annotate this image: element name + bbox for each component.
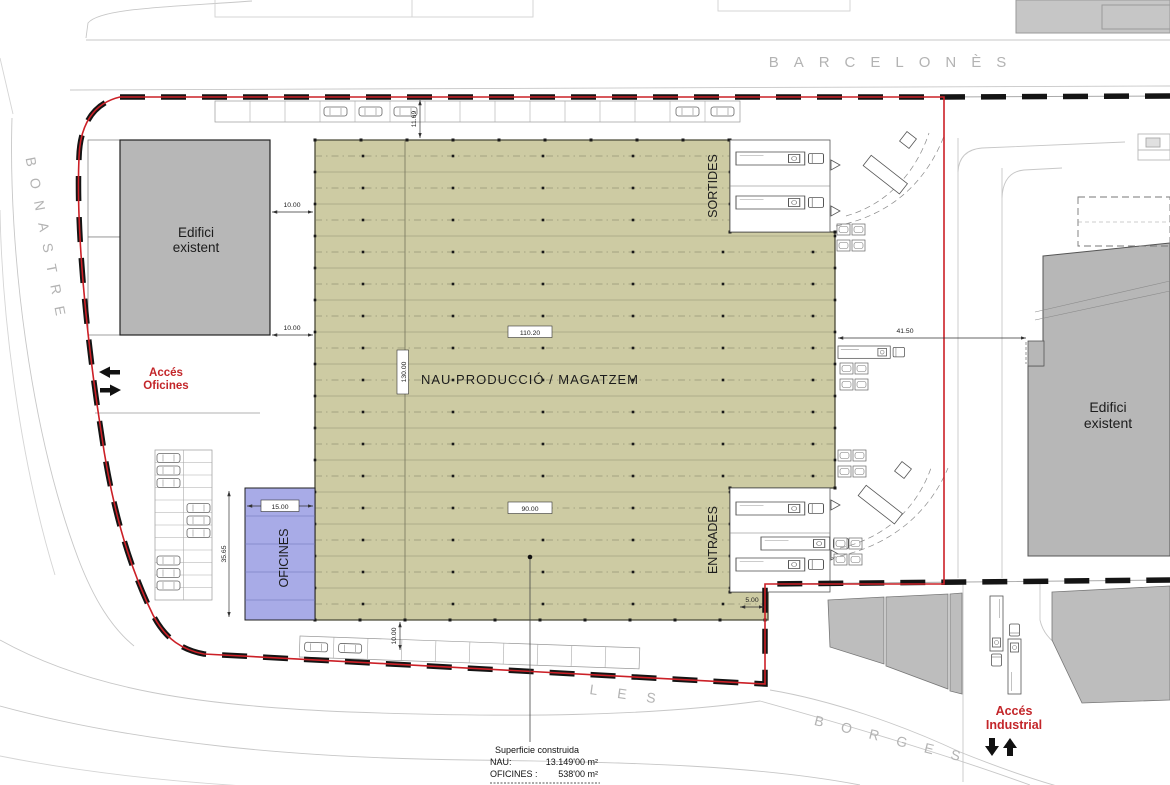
arrow-right-icon <box>100 385 121 397</box>
dim-nau-height: 130.00 <box>397 350 409 394</box>
truck-icon <box>736 196 824 209</box>
parking-top <box>215 101 740 122</box>
car-icon <box>187 504 210 513</box>
dim-entrades-width: 90.00 <box>508 502 552 514</box>
dim-text: 10.00 <box>283 202 300 209</box>
car-pair-icon <box>837 240 865 251</box>
dim-nau-width: 110.20 <box>508 326 552 338</box>
acces-industrial-label-2: Industrial <box>986 718 1042 732</box>
edifici-right-label-2: existent <box>1084 415 1132 431</box>
car-icon <box>359 107 382 116</box>
dim-text: 130.00 <box>401 361 408 382</box>
dim-text: 90.00 <box>521 506 538 513</box>
street-left-label: BONASTRE <box>23 156 72 329</box>
acces-oficines-label-2: Oficines <box>143 380 188 392</box>
edifici-right-label-1: Edifici <box>1089 399 1126 415</box>
parking-left <box>155 450 212 600</box>
car-pair-icon <box>840 379 868 390</box>
car-icon <box>324 107 347 116</box>
arrow-down-icon <box>985 738 999 756</box>
acces-industrial: Accés Industrial <box>985 704 1042 756</box>
car-icon <box>187 529 210 538</box>
car-icon <box>157 581 180 590</box>
dock-arrow-icon <box>831 500 840 510</box>
truck-icon <box>736 558 824 571</box>
dim-text: 35.65 <box>221 545 228 562</box>
car-icon <box>157 454 180 463</box>
truck-icon <box>1008 624 1021 694</box>
car-icon <box>157 569 180 578</box>
road-corner-topleft <box>86 1 252 38</box>
nau-label: NAU PRODUCCIÓ / MAGATZEM <box>421 372 639 387</box>
truck-icon <box>736 502 824 515</box>
street-bottom-label-1: LES <box>589 681 677 709</box>
car-icon <box>187 516 210 525</box>
dim-oficines-height: 35.65 <box>221 491 229 617</box>
dim-gap-left-bottom: 10.00 <box>272 325 313 335</box>
dim-gap-left-top: 10.00 <box>272 202 313 212</box>
acces-industrial-label-1: Accés <box>996 704 1033 718</box>
truck-icon <box>838 346 905 358</box>
block-south-3 <box>950 593 962 694</box>
site-plan-drawing: Edifici existent Edifici existent NAU PR… <box>0 0 1170 785</box>
summary-row-value: 538'00 m² <box>558 769 598 779</box>
arrow-up-icon <box>1003 738 1017 756</box>
summary-row-label: NAU: <box>490 757 512 767</box>
car-icon <box>676 107 699 116</box>
street-top-label: BARCELONÈS <box>769 54 1022 71</box>
edifici-existent-left: Edifici existent <box>88 140 270 335</box>
dock-arrow-icon <box>831 206 840 216</box>
dim-text: 110.20 <box>520 330 541 337</box>
dim-text: 15.00 <box>271 504 288 511</box>
dim-text: 41.50 <box>896 328 913 335</box>
block-south-east <box>1052 586 1170 703</box>
oficines-label: OFICINES <box>277 528 291 587</box>
edifici-left-label-2: existent <box>173 240 220 255</box>
sortides-label: SORTIDES <box>706 154 720 218</box>
dim-text: 5.00 <box>745 597 758 604</box>
car-icon <box>304 642 327 652</box>
car-pair-icon <box>834 554 862 565</box>
dim-text: 10.00 <box>283 325 300 332</box>
truck-icon <box>990 596 1003 666</box>
block-south-1 <box>828 597 884 664</box>
dim-text: 10.00 <box>391 627 398 644</box>
acces-oficines: Accés Oficines <box>99 367 189 397</box>
road-borges-curb-lower <box>0 706 860 785</box>
dock-arrow-icon <box>831 160 840 170</box>
leader-dot <box>528 555 533 560</box>
future-extension-dashed <box>1078 197 1170 246</box>
entrades-docks <box>730 488 849 592</box>
summary-row-label: OFICINES : <box>490 769 538 779</box>
truck-turning-paths <box>830 132 948 558</box>
car-pair-icon <box>837 224 865 235</box>
street-bottom-label-2: BORGES <box>813 712 980 768</box>
car-pair-icon <box>838 466 866 477</box>
dim-text: 11.69 <box>411 111 418 128</box>
car-pair-icon <box>838 450 866 461</box>
car-icon <box>157 466 180 475</box>
acces-oficines-label-1: Accés <box>149 367 183 379</box>
site-plan-page: Edifici existent Edifici existent NAU PR… <box>0 0 1170 785</box>
car-icon <box>338 643 361 653</box>
car-icon <box>157 556 180 565</box>
truck-icon <box>736 152 824 165</box>
arrow-left-icon <box>99 367 120 379</box>
car-icon <box>157 479 180 488</box>
car-pair-icon <box>840 363 868 374</box>
sortides-docks <box>730 140 840 232</box>
edifici-existent-right: Edifici existent <box>1028 197 1170 556</box>
car-icon <box>711 107 734 116</box>
entrades-label: ENTRADES <box>706 506 720 574</box>
edifici-left-label-1: Edifici <box>178 225 214 240</box>
summary-row-value: 13.149'00 m² <box>546 757 598 767</box>
block-south-2 <box>886 594 948 689</box>
summary-title: Superficie construida <box>495 745 579 755</box>
street-trucks <box>990 596 1021 694</box>
